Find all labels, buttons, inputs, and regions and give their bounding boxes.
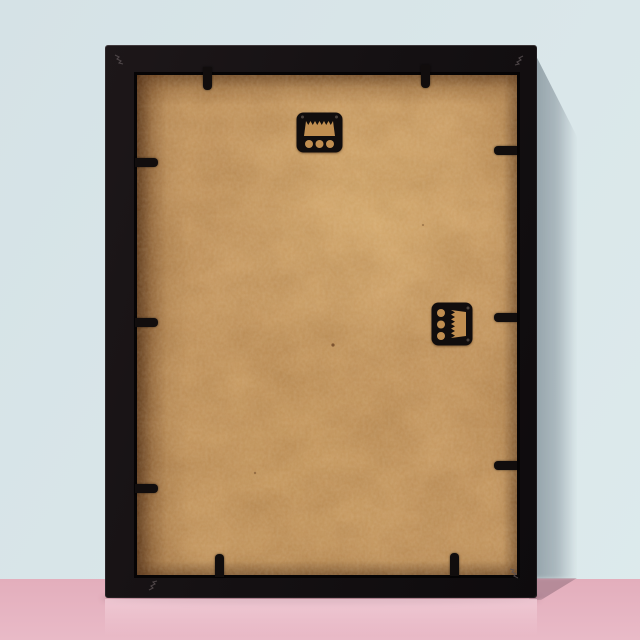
retainer-clip-bottom-2 <box>450 553 459 576</box>
picture-frame-back <box>105 45 537 598</box>
retainer-clip-left-2 <box>135 318 158 327</box>
hanger-notch <box>467 339 470 342</box>
hanger-hole <box>316 140 324 148</box>
board-fleck <box>254 472 256 474</box>
corner-vnail-mark <box>113 52 127 66</box>
hanger-cutout <box>451 310 466 338</box>
retainer-clip-bottom-1 <box>215 554 224 577</box>
retainer-clip-left-1 <box>135 158 158 167</box>
board-fleck <box>422 224 424 226</box>
board-fleck <box>331 343 334 346</box>
sawtooth-hanger-top-icon <box>296 112 343 153</box>
hanger-notch <box>335 116 338 119</box>
hanger-notch <box>301 116 304 119</box>
retainer-clip-left-3 <box>135 484 158 493</box>
retainer-clip-right-1 <box>494 146 517 155</box>
corner-vnail-mark <box>511 53 525 67</box>
corner-vnail-mark <box>147 579 161 593</box>
retainer-clip-right-3 <box>494 461 517 470</box>
corner-vnail-mark <box>506 567 520 581</box>
product-photo-scene <box>0 0 640 640</box>
retainer-clip-top-1 <box>203 67 212 90</box>
hanger-hole <box>305 140 313 148</box>
retainer-clip-right-2 <box>494 313 517 322</box>
hanger-notch <box>467 307 470 310</box>
frame-shadow-on-wall <box>531 46 577 579</box>
hanger-hole <box>437 309 445 317</box>
hanger-hole <box>326 140 334 148</box>
hanger-hole <box>437 332 445 340</box>
retainer-clip-top-2 <box>421 65 430 88</box>
hanger-hole <box>437 321 445 329</box>
frame-floor-reflection <box>105 599 537 640</box>
sawtooth-hanger-side-icon <box>431 302 473 346</box>
